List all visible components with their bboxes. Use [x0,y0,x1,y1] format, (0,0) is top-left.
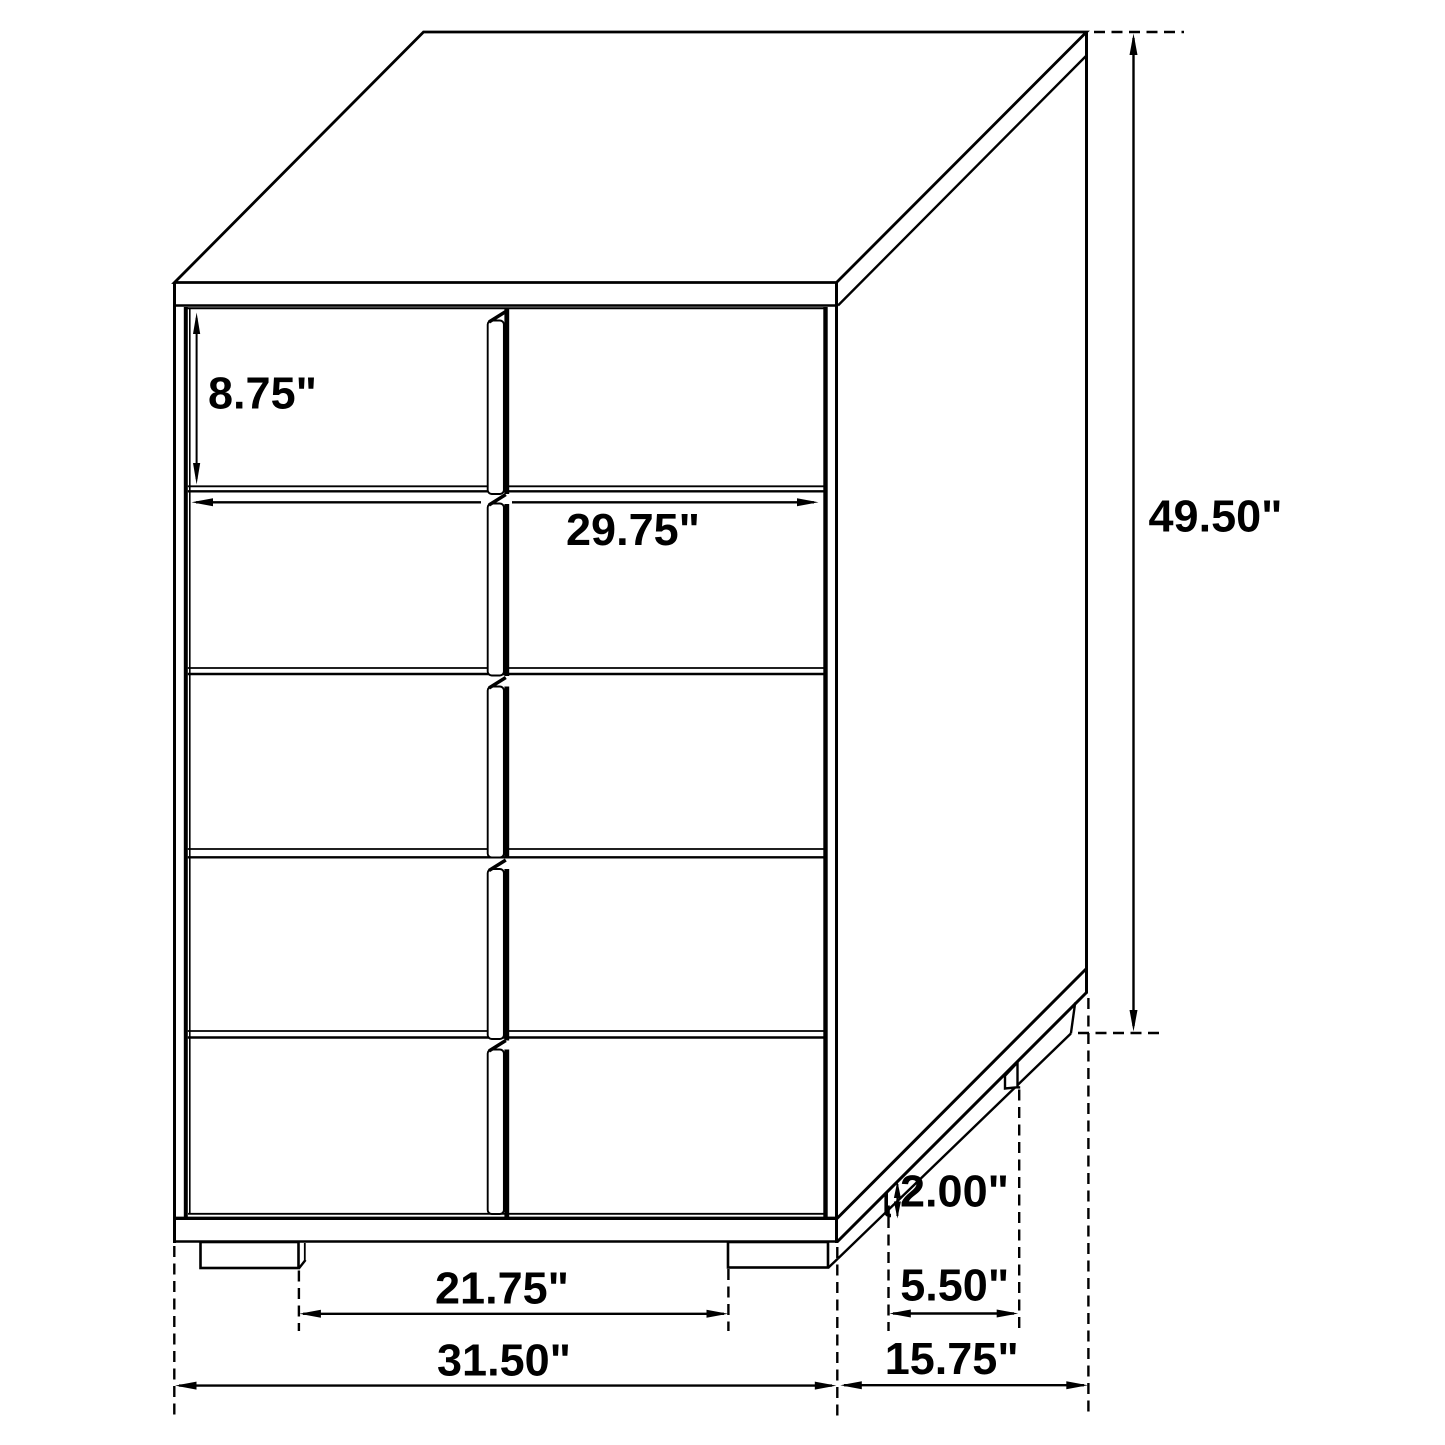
svg-text:49.50": 49.50" [1149,491,1283,542]
svg-text:21.75": 21.75" [435,1263,569,1314]
svg-text:29.75": 29.75" [566,504,700,555]
svg-text:8.75": 8.75" [208,368,317,419]
svg-text:5.50": 5.50" [900,1260,1009,1311]
svg-text:2.00": 2.00" [900,1166,1009,1217]
svg-text:31.50": 31.50" [437,1335,571,1386]
svg-text:15.75": 15.75" [885,1333,1019,1384]
